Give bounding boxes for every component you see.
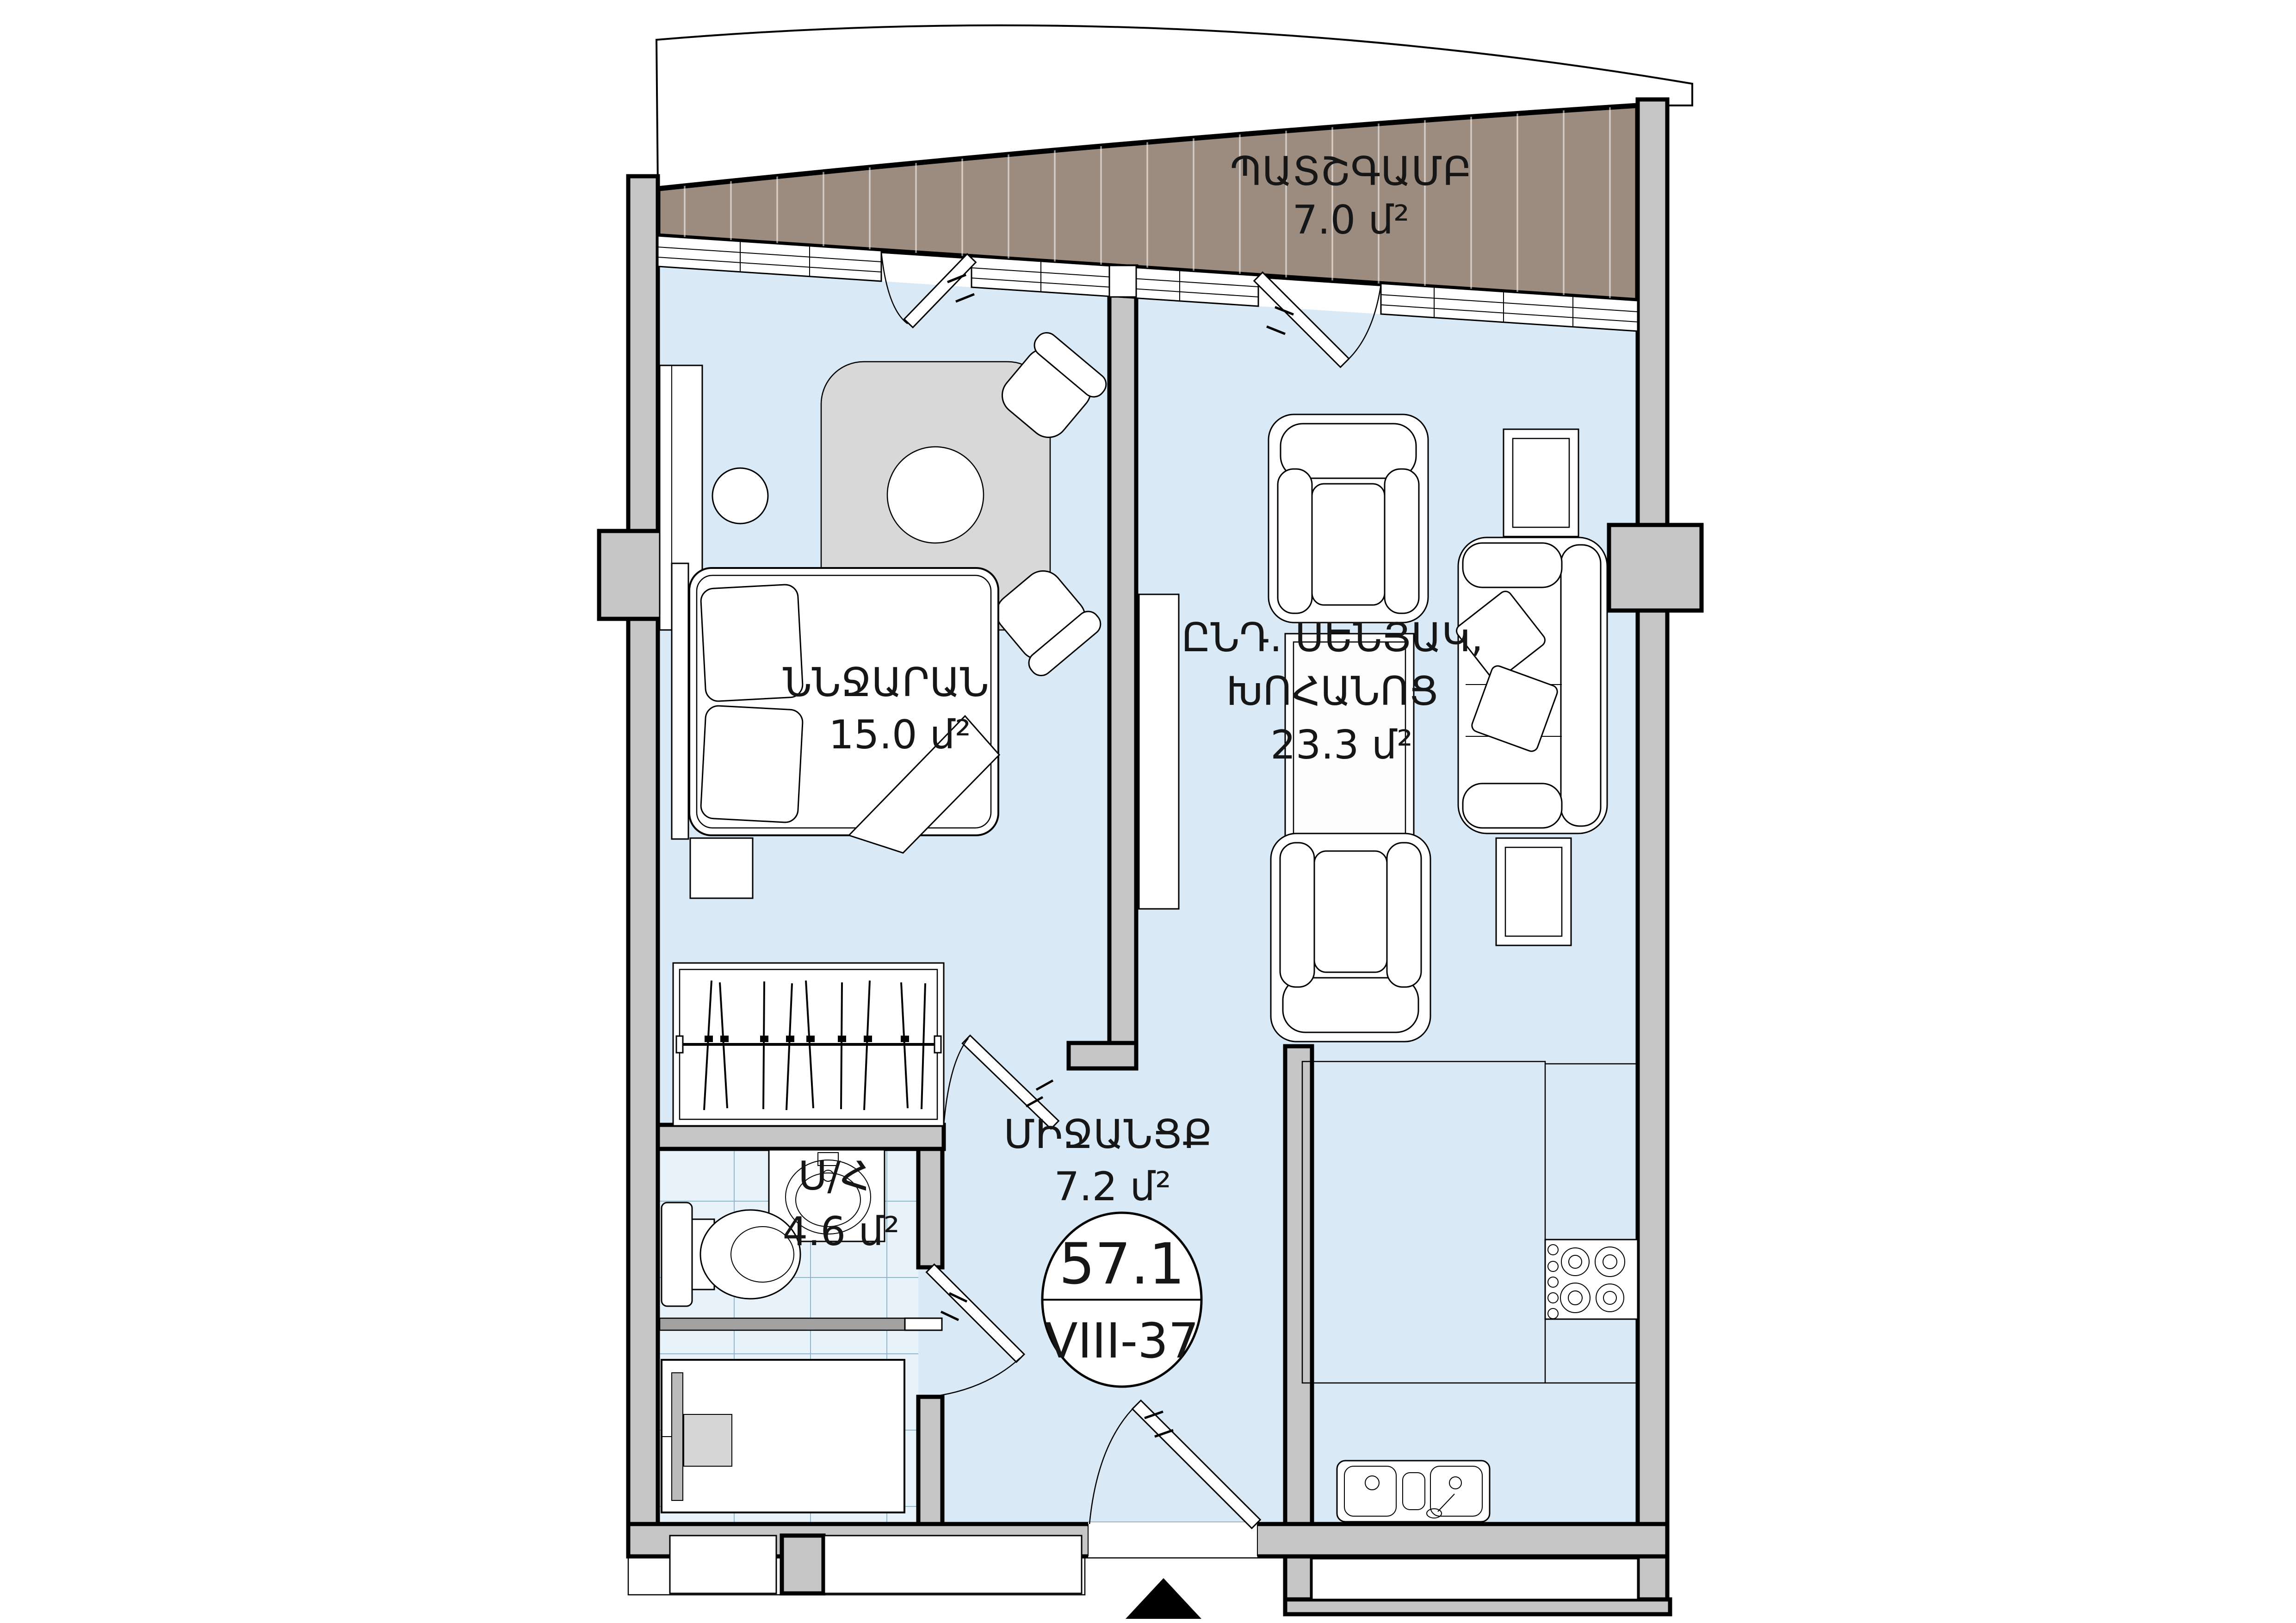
pilaster-right [1609,525,1702,611]
hallway-area: 7.2 մ² [1054,1164,1171,1210]
living-label-line1: ԸՆԴ. ՍԵՆՅԱԿ, [1182,615,1483,661]
table-top [887,447,984,543]
window-band-mullion [1109,265,1136,297]
entry-arrow-icon [1126,1578,1201,1619]
floor-plan: ՊԱՏՇԳԱՄԲ 7.0 մ² ՆՆՋԱՐԱՆ 15.0 մ² ԸՆԴ. ՍԵՆ… [0,0,2296,1623]
living-area: 23.3 մ² [1270,722,1413,768]
balcony-area: 7.0 մ² [1292,197,1409,243]
side-table-top [1504,429,1578,537]
tv-stand [1139,594,1179,909]
bed-headboard [672,563,688,839]
entry-opening [1088,1522,1257,1557]
wall-kitchen [1285,1046,1312,1524]
cooktop [1545,1240,1638,1319]
bathroom-area: 4.6 մ² [782,1209,899,1255]
wall-stub-bottom [782,1536,823,1593]
shower-screen [660,1318,905,1330]
shower-screen-glass [905,1318,942,1330]
unit-badge: 57.1 VIII-37 [1042,1213,1201,1387]
pillow-2 [700,705,803,823]
wall-partition-foot [1069,1043,1136,1068]
shower [661,1360,904,1512]
exterior-window-2 [824,1536,1082,1593]
bedroom-area: 15.0 մ² [829,712,971,758]
armchair-bottom [1271,833,1430,1042]
sofa [1454,537,1607,833]
wall-partition-living [1109,266,1136,1043]
wall-bathroom-east-lower [918,1397,942,1524]
wall-bottom-right-rail [1285,1599,1670,1614]
side-table-bottom [1496,838,1571,945]
unit-total-area: 57.1 [1059,1231,1185,1297]
armchair-top [1269,414,1428,623]
closet [673,963,944,1126]
wall-right [1638,99,1667,1614]
unit-number: VIII-37 [1045,1313,1199,1369]
wall-left [628,176,658,1556]
balcony-label: ՊԱՏՇԳԱՄԲ [1230,148,1472,195]
wall-bathroom-east-upper [918,1149,942,1267]
bedroom-label: ՆՆՋԱՐԱՆ [783,660,989,706]
kitchen-sink [1337,1461,1490,1522]
exterior-window-1 [670,1536,776,1593]
hallway-label: ՄԻՋԱՆՑՔ [1003,1111,1212,1158]
nightstand [690,838,753,898]
wall-bedroom-south [658,1125,944,1149]
toilet [662,1203,800,1306]
wall-kitchen-ext [1285,1556,1312,1599]
stool [712,468,768,524]
bathroom-label: Ս/Հ [798,1153,869,1199]
living-label-line2: ԽՈՀԱՆՈՑ [1226,668,1438,715]
exterior-window-right [1312,1559,1638,1599]
